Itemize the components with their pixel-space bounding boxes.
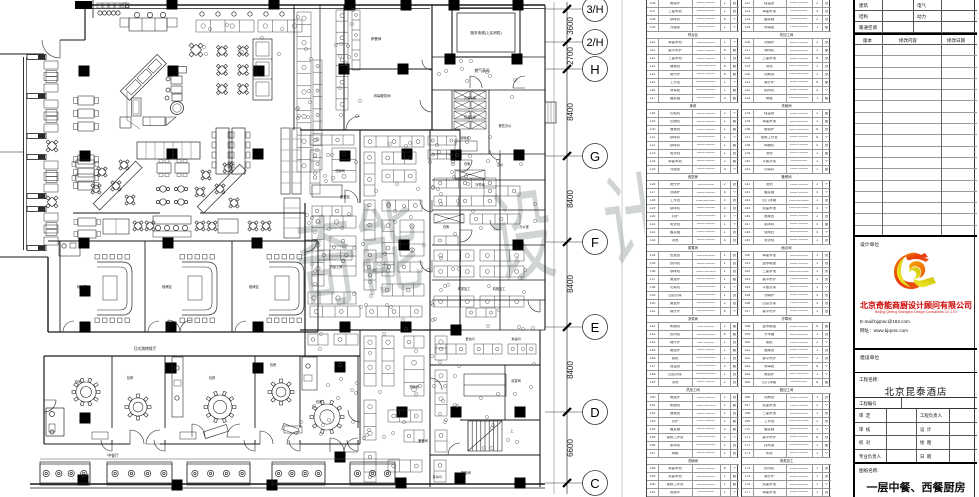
svg-text:2/H: 2/H (586, 37, 603, 49)
svg-text:备餐间: 备餐间 (418, 438, 428, 443)
svg-text:洗碗间: 洗碗间 (335, 168, 345, 173)
svg-text:烧烤区: 烧烤区 (249, 284, 260, 289)
svg-text:计: 计 (597, 162, 645, 281)
svg-text:备餐区: 备餐区 (340, 194, 351, 199)
svg-text:冷荤间: 冷荤间 (475, 182, 485, 187)
svg-text:包房: 包房 (127, 375, 133, 380)
svg-text:D: D (590, 405, 599, 420)
svg-text:淋浴间: 淋浴间 (511, 336, 520, 341)
svg-text:日式烧烤餐厅: 日式烧烤餐厅 (134, 346, 157, 351)
svg-text:配电间: 配电间 (461, 470, 471, 475)
svg-text:上: 上 (510, 428, 514, 433)
svg-text:3600: 3600 (566, 17, 575, 35)
svg-text:2700: 2700 (566, 47, 575, 65)
svg-text:中餐厅: 中餐厅 (107, 453, 119, 458)
svg-text:烧烤区: 烧烤区 (77, 284, 88, 289)
svg-text:洗碗间: 洗碗间 (409, 384, 419, 389)
svg-text:包房: 包房 (316, 399, 322, 404)
svg-text:仓库: 仓库 (464, 161, 471, 166)
svg-text:服务电梯(上区消防): 服务电梯(上区消防) (470, 30, 501, 35)
svg-text:8400: 8400 (566, 103, 575, 121)
svg-text:8400: 8400 (566, 275, 575, 293)
svg-text:C: C (590, 476, 599, 491)
svg-text:包房: 包房 (75, 379, 81, 384)
svg-text:F: F (591, 235, 599, 250)
svg-text:茶水间: 茶水间 (432, 474, 441, 479)
svg-text:低温冷库: 低温冷库 (464, 114, 476, 119)
svg-text:包房: 包房 (270, 362, 276, 367)
svg-text:高温冷库: 高温冷库 (464, 95, 476, 100)
svg-text:停餐间: 停餐间 (371, 36, 382, 41)
svg-text:E: E (591, 320, 600, 335)
svg-text:G: G (590, 149, 600, 164)
svg-text:设宴间: 设宴间 (511, 378, 521, 383)
svg-text:烧烤区: 烧烤区 (162, 284, 173, 289)
svg-text:6600: 6600 (566, 439, 575, 457)
svg-text:餐饮办公: 餐饮办公 (499, 123, 513, 128)
svg-text:仓库: 仓库 (443, 224, 450, 229)
svg-text:8400: 8400 (566, 190, 575, 208)
svg-text:办公室: 办公室 (519, 224, 529, 229)
svg-text:H: H (590, 62, 599, 77)
svg-text:3/H: 3/H (586, 4, 603, 16)
svg-text:肉类加工: 肉类加工 (458, 286, 472, 291)
svg-text:包房: 包房 (209, 375, 215, 380)
svg-text:热加工间: 热加工间 (330, 264, 343, 269)
svg-text:机械加工: 机械加工 (493, 286, 507, 291)
svg-text:更衣间: 更衣间 (465, 336, 474, 341)
svg-text:消毒服务间: 消毒服务间 (374, 93, 392, 98)
svg-text:8400: 8400 (566, 361, 575, 379)
